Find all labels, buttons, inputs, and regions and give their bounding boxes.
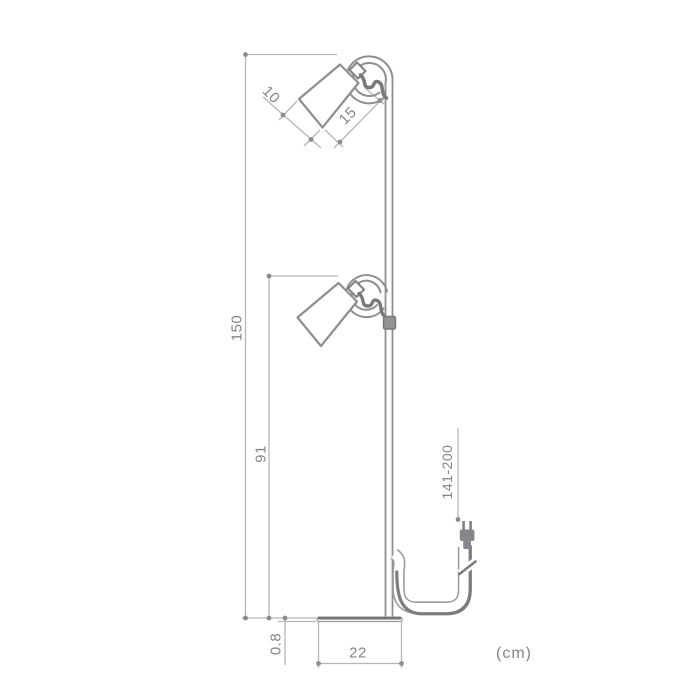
power-cord bbox=[394, 547, 476, 614]
dimension-dot-markers bbox=[243, 52, 460, 666]
lower-shade-cord bbox=[359, 294, 385, 317]
unit-note: (cm) bbox=[496, 646, 532, 662]
dim-label-total-height: 150 bbox=[230, 315, 245, 342]
dim-label-lower-lamp-height: 91 bbox=[254, 445, 269, 463]
lower-shade bbox=[298, 281, 386, 346]
dim-15-ext-a bbox=[325, 130, 343, 147]
dim-label-cord-length: 141-200 bbox=[440, 445, 454, 500]
diagram-canvas: 10 15 150 91 141-200 0.8 22 (cm) bbox=[0, 0, 700, 700]
dimension-lines bbox=[242, 55, 458, 669]
dim-label-base-width: 22 bbox=[349, 646, 367, 661]
floor-lamp bbox=[298, 56, 477, 621]
base-plate bbox=[317, 617, 402, 622]
dim-label-base-thickness: 0.8 bbox=[269, 633, 284, 655]
lower-shade-body bbox=[298, 283, 358, 346]
pole-clamp-knob bbox=[384, 317, 396, 330]
lamp-pole bbox=[386, 82, 393, 617]
plug-icon bbox=[460, 521, 475, 549]
dim-10-ext-a bbox=[279, 101, 297, 120]
